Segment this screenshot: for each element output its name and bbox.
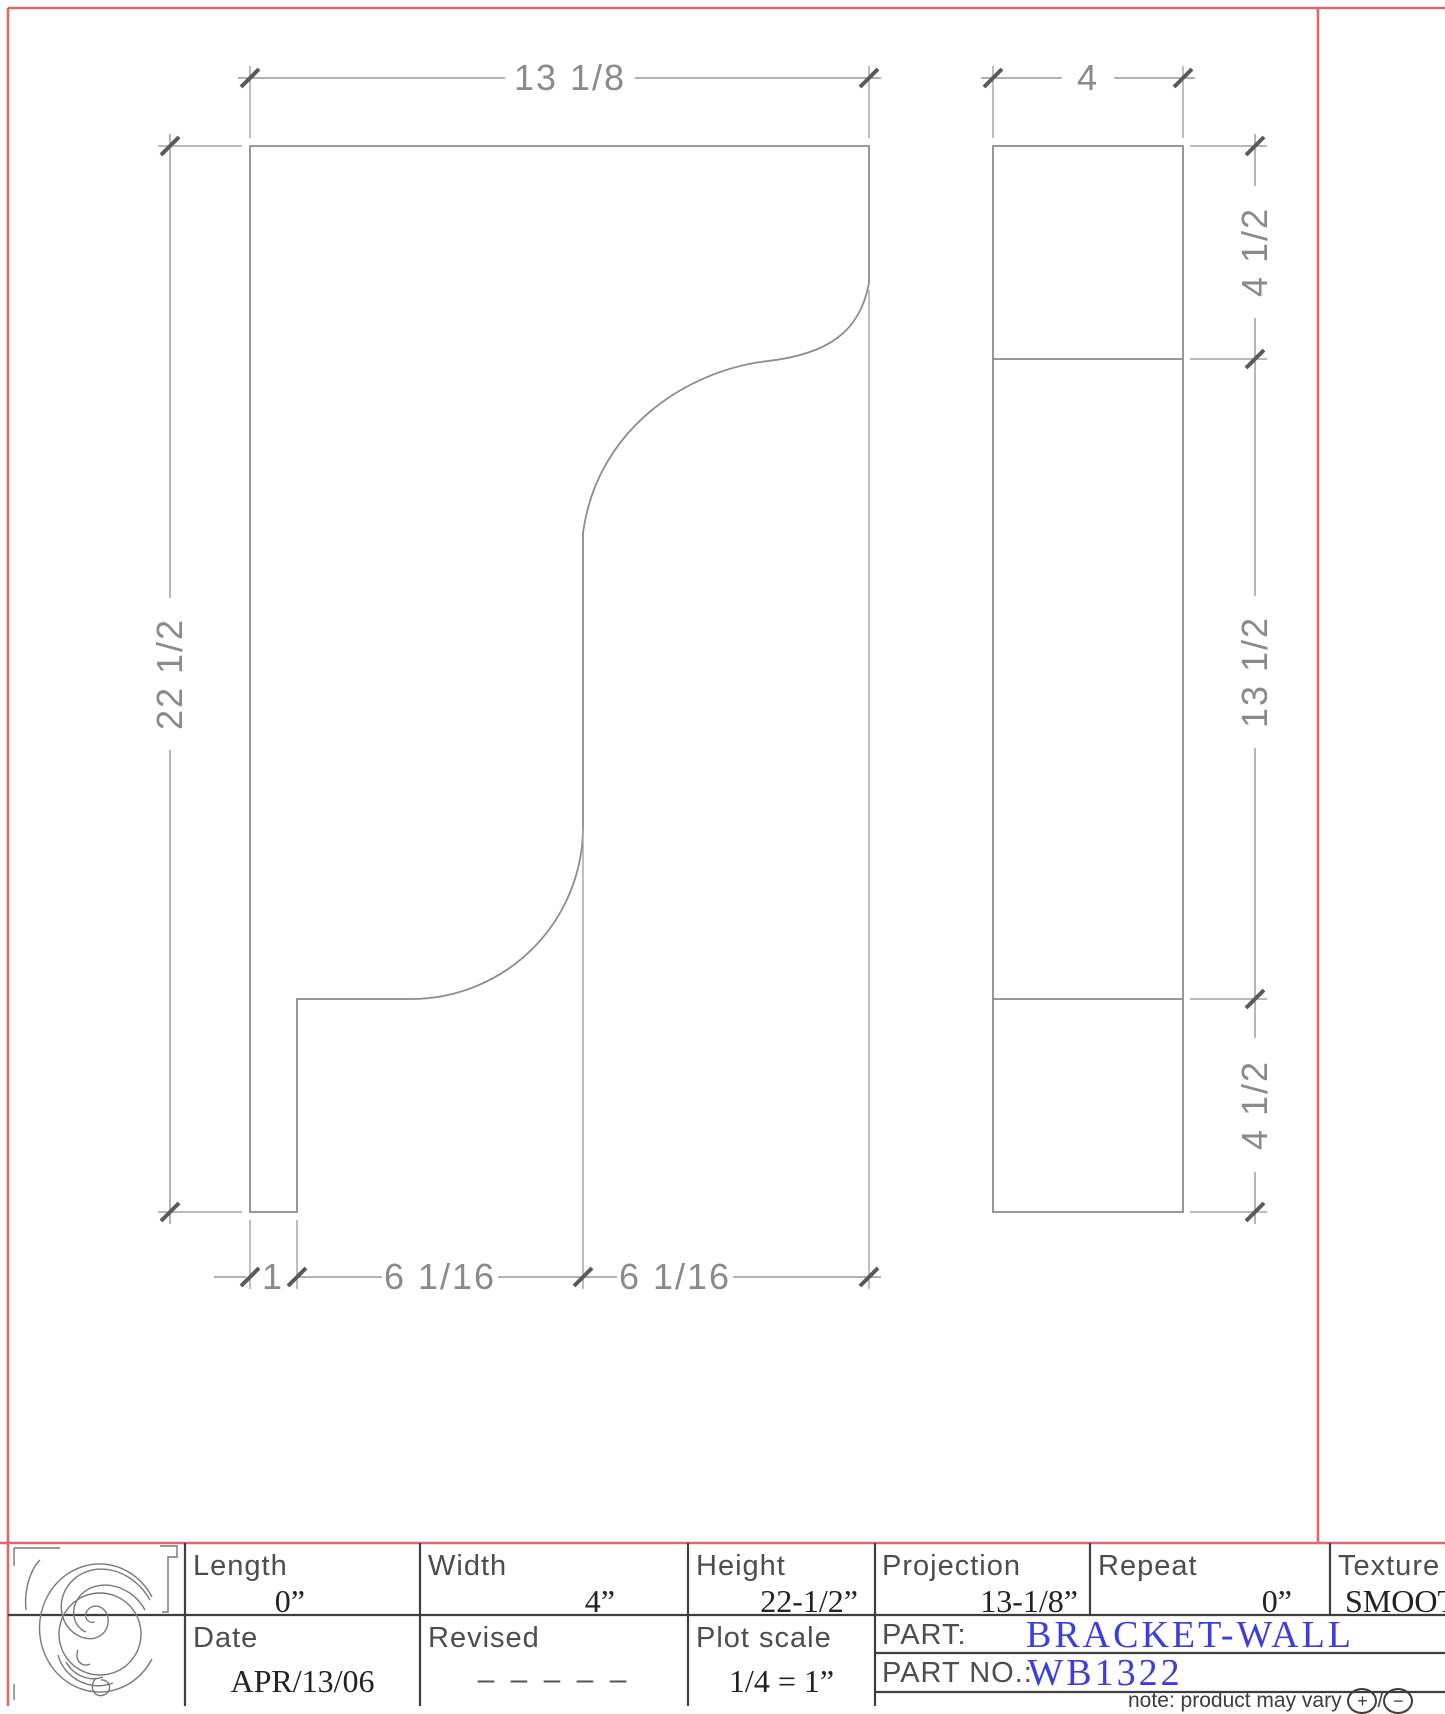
repeat-label: Repeat bbox=[1098, 1550, 1198, 1583]
plus-circle-icon: + bbox=[1347, 1688, 1377, 1714]
revised-value: – – – – – bbox=[420, 1663, 688, 1697]
sheet-border bbox=[0, 8, 1445, 1706]
front-dim-bottom: 4 1/2 bbox=[1234, 1060, 1275, 1150]
profile-bottom-dimensions: 1 6 1/16 6 1/16 bbox=[214, 290, 881, 1297]
height-value: 22-1/2” bbox=[688, 1583, 858, 1620]
company-logo-scroll bbox=[14, 1546, 177, 1700]
texture-label: Texture bbox=[1338, 1550, 1440, 1583]
profile-view-outline bbox=[250, 146, 869, 1212]
profile-height-label: 22 1/2 bbox=[149, 618, 190, 730]
front-right-dimensions: 4 1/2 13 1/2 4 1/2 bbox=[1190, 134, 1275, 1224]
plot-scale-value: 1/4 = 1” bbox=[688, 1663, 875, 1700]
front-view-outline bbox=[993, 146, 1183, 1212]
projection-label: Projection bbox=[882, 1550, 1021, 1583]
date-label: Date bbox=[193, 1622, 258, 1655]
bottom-dim-foot: 1 bbox=[262, 1256, 284, 1297]
bottom-dim-right: 6 1/16 bbox=[619, 1256, 731, 1297]
length-value: 0” bbox=[185, 1583, 305, 1620]
profile-height-dimension: 22 1/2 bbox=[149, 134, 242, 1224]
width-label: Width bbox=[428, 1550, 507, 1583]
length-label: Length bbox=[193, 1550, 288, 1583]
front-dim-top: 4 1/2 bbox=[1234, 207, 1275, 297]
height-label: Height bbox=[696, 1550, 786, 1583]
part-label: PART: bbox=[882, 1619, 967, 1652]
note-text: note: product may vary bbox=[1128, 1689, 1342, 1712]
product-note: note: product may vary +/− bbox=[1128, 1688, 1413, 1714]
width-value: 4” bbox=[420, 1583, 615, 1620]
front-width-dimension: 4 bbox=[981, 57, 1195, 138]
front-width-label: 4 bbox=[1077, 57, 1099, 98]
revised-label: Revised bbox=[428, 1622, 540, 1655]
date-value: APR/13/06 bbox=[185, 1663, 420, 1700]
cad-canvas: 13 1/8 22 1/2 1 6 1/16 6 1/16 bbox=[0, 0, 1445, 1706]
profile-width-label: 13 1/8 bbox=[514, 57, 626, 98]
profile-width-dimension: 13 1/8 bbox=[238, 57, 881, 138]
minus-circle-icon: − bbox=[1383, 1688, 1413, 1714]
drawing-sheet: 13 1/8 22 1/2 1 6 1/16 6 1/16 bbox=[0, 0, 1445, 1706]
front-dim-middle: 13 1/2 bbox=[1234, 616, 1275, 728]
plot-scale-label: Plot scale bbox=[696, 1622, 832, 1655]
bottom-dim-left: 6 1/16 bbox=[384, 1256, 496, 1297]
